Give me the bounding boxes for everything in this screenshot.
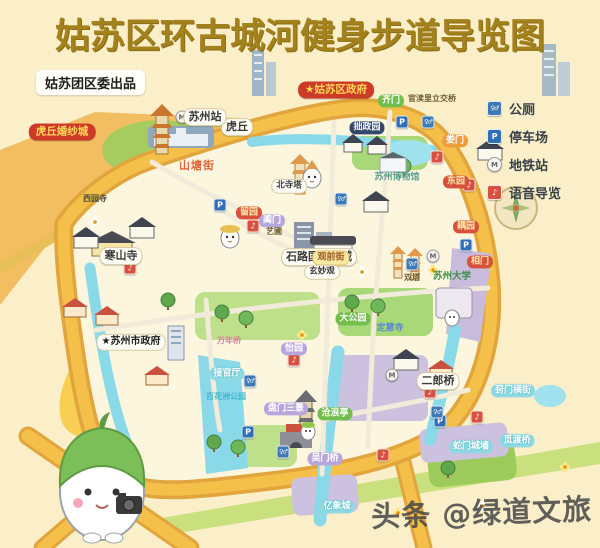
legend-icon: M xyxy=(487,157,502,172)
legend-label: 公厕 xyxy=(509,99,535,118)
legend-icon: ♀♂ xyxy=(487,101,502,116)
legend-item: ♀♂ 公厕 xyxy=(487,99,561,118)
government-building xyxy=(168,326,184,360)
small-mascot xyxy=(445,310,459,326)
legend-item: M 地铁站 xyxy=(487,155,561,174)
poster-page: 姑苏区环古城河健身步道导览图 姑苏团区委出品 xyxy=(0,0,600,548)
byline-badge: 姑苏团区委出品 xyxy=(36,70,145,95)
legend-label: 停车场 xyxy=(509,127,548,146)
guanqian-shop-row xyxy=(310,236,356,253)
small-mascot xyxy=(301,422,315,440)
legend: ♀♂ 公厕 P 停车场 M 地铁站 ♪ 语音导览 xyxy=(487,99,561,211)
page-title: 姑苏区环古城河健身步道导览图 xyxy=(0,8,600,59)
legend-label: 语音导览 xyxy=(509,183,561,202)
legend-icon: P xyxy=(487,129,502,144)
legend-icon: ♪ xyxy=(487,185,502,200)
legend-label: 地铁站 xyxy=(509,155,548,174)
small-mascot xyxy=(220,225,240,248)
legend-item: ♪ 语音导览 xyxy=(487,183,561,202)
watermark: 头条 @绿道文旅 xyxy=(370,486,592,536)
legend-item: P 停车场 xyxy=(487,127,561,146)
